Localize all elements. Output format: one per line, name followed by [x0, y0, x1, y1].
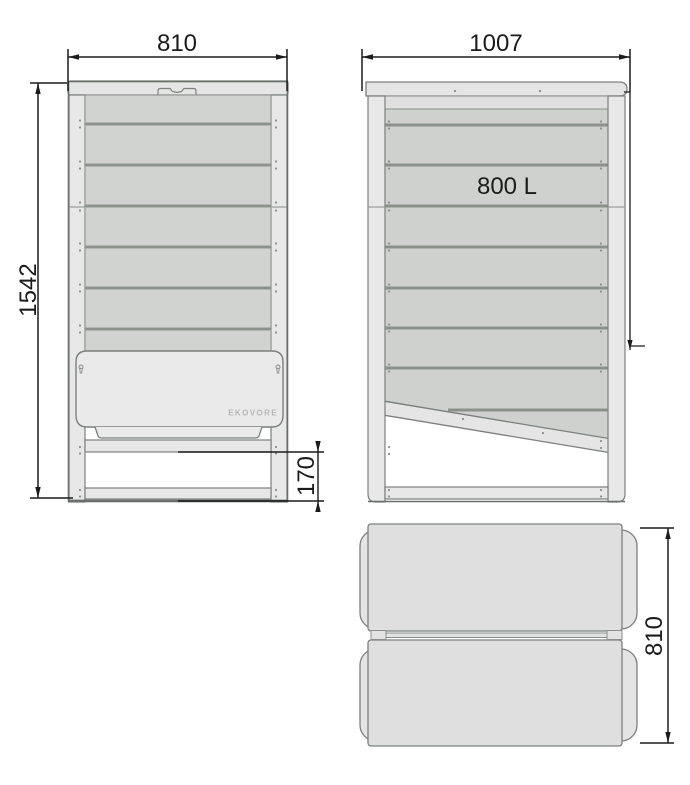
technical-drawing: EKOVORE 810: [0, 0, 690, 785]
arrow-bottom: [627, 340, 632, 350]
dimension-label-depth: 1007: [469, 30, 522, 57]
arrow-right: [619, 54, 630, 59]
arrow-bottom: [665, 732, 670, 743]
arrow-bottom: [35, 487, 40, 498]
front-flap: EKOVORE: [76, 351, 283, 438]
arrow-right: [276, 54, 287, 59]
dimension-label-width: 810: [157, 30, 197, 57]
front-right-post: [271, 95, 287, 502]
top-dimension-depth: 810: [640, 528, 674, 743]
top-lid-lower: [368, 640, 622, 746]
front-left-post: [69, 95, 85, 502]
side-left-post: [368, 96, 385, 502]
arrow-down: [315, 441, 320, 452]
side-right-post: [608, 96, 625, 502]
front-lower-board: [85, 440, 271, 452]
side-lid: [366, 82, 627, 96]
dimension-label-opening: 170: [293, 456, 320, 496]
arrow-left: [68, 54, 79, 59]
hinge-block-left: [371, 631, 386, 640]
hinge-block-right: [607, 631, 622, 640]
side-bottom-rail: [385, 487, 608, 499]
arrow-top: [665, 528, 670, 539]
dimension-label-height: 1542: [15, 263, 42, 316]
lid-hinge: [371, 631, 622, 640]
technical-drawing-canvas: EKOVORE 810: [0, 0, 690, 785]
arrow-up: [315, 501, 320, 512]
side-view: 800 L 1007: [362, 30, 645, 502]
front-bottom-rail: [85, 488, 271, 499]
front-dimension-height: 1542: [15, 83, 73, 498]
side-top-rail: [385, 96, 608, 109]
front-slat-panel: [85, 95, 271, 352]
front-dimension-opening: 170: [178, 441, 324, 512]
arrow-left: [362, 54, 373, 59]
brand-logo-text: EKOVORE: [228, 409, 278, 418]
capacity-bracket-line: [624, 92, 645, 350]
side-slat-panel: [385, 109, 608, 439]
front-view: EKOVORE 810: [15, 30, 324, 512]
capacity-label: 800 L: [477, 173, 537, 200]
dimension-label-top-depth: 810: [641, 616, 668, 656]
arrow-top: [35, 83, 40, 94]
flap-latch-tab: [95, 427, 262, 438]
top-view: 810: [360, 524, 674, 746]
top-lid-upper: [368, 524, 622, 631]
